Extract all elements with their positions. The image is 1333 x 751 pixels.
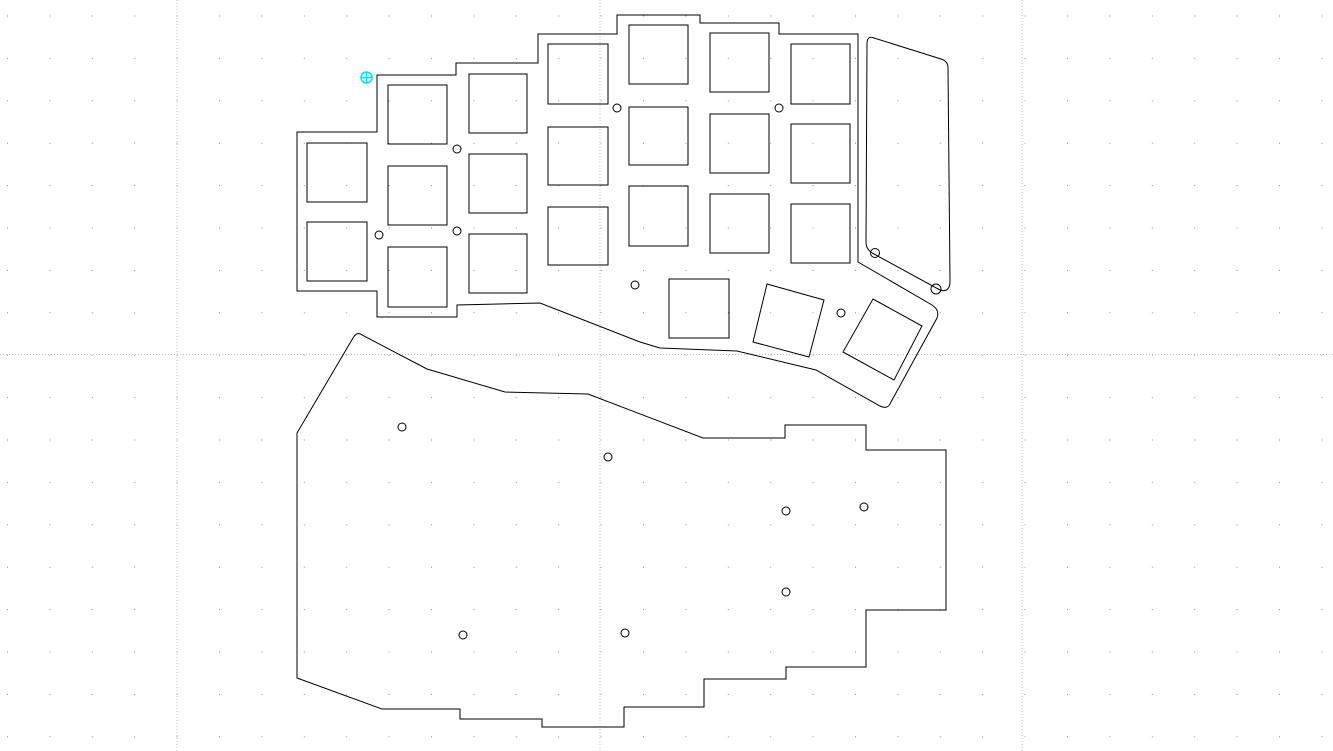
origin-marker[interactable] — [361, 72, 372, 83]
grid-dots-layer — [0, 0, 1333, 751]
cad-canvas[interactable] — [0, 0, 1333, 751]
cad-viewport[interactable] — [0, 0, 1333, 751]
